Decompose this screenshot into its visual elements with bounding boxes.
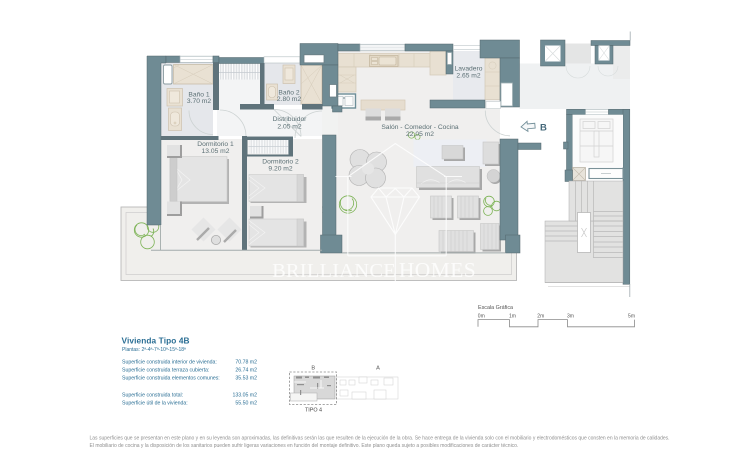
svg-text:Distribuidor: Distribuidor [273,116,308,123]
svg-text:3.70 m2: 3.70 m2 [187,98,211,105]
svg-text:HOMES: HOMES [399,258,476,282]
svg-text:Superficie útil de la vivienda: Superficie útil de la vivienda: [122,400,188,406]
svg-text:Superficie construida interior: Superficie construida interior de vivien… [122,360,217,366]
svg-text:2.80 m2: 2.80 m2 [277,96,301,103]
svg-text:35.53 m2: 35.53 m2 [235,376,257,382]
svg-text:13.05 m2: 13.05 m2 [202,148,230,155]
svg-text:Superficie construida terraza: Superficie construida terraza cubierta: [122,368,209,374]
svg-text:A: A [376,366,380,372]
svg-text:55.50 m2: 55.50 m2 [235,400,257,406]
svg-text:Dormitorio 2: Dormitorio 2 [262,158,299,165]
svg-text:BRILLIANCE: BRILLIANCE [272,260,396,282]
svg-text:Dormitorio 1: Dormitorio 1 [197,141,234,148]
svg-text:Lavadero: Lavadero [455,65,483,72]
svg-text:Plantas: 2ª-4ª-7ª-10ª-15ª-18ª: Plantas: 2ª-4ª-7ª-10ª-15ª-18ª [122,347,186,353]
svg-text:3m: 3m [567,313,574,319]
svg-text:70.78 m2: 70.78 m2 [235,360,257,366]
svg-text:5m: 5m [628,313,635,319]
svg-text:1m: 1m [509,313,516,319]
svg-text:Superficie construida total:: Superficie construida total: [122,392,183,398]
svg-text:2.05 m2: 2.05 m2 [277,123,301,130]
svg-text:TIPO 4: TIPO 4 [305,408,322,414]
svg-text:Las superficies que se present: Las superficies que se presentan en este… [90,435,670,441]
svg-text:El mobiliario de cocina y la d: El mobiliario de cocina y la disposición… [90,443,519,449]
svg-text:9.20 m2: 9.20 m2 [268,165,292,172]
svg-text:Vivienda Tipo 4B: Vivienda Tipo 4B [122,336,190,346]
svg-text:2m: 2m [537,313,544,319]
svg-text:0m: 0m [478,313,485,319]
svg-text:Superficie construida elemento: Superficie construida elementos comunes: [122,376,220,382]
svg-text:26.74 m2: 26.74 m2 [235,368,257,374]
svg-text:2.65 m2: 2.65 m2 [456,73,480,80]
svg-text:133.05 m2: 133.05 m2 [232,392,257,398]
svg-text:22.05 m2: 22.05 m2 [406,131,434,138]
svg-text:B: B [311,366,315,372]
svg-text:B: B [540,123,547,134]
svg-text:Escala Gráfica: Escala Gráfica [478,305,513,311]
svg-text:Salón - Comedor - Cocina: Salón - Comedor - Cocina [381,124,459,131]
